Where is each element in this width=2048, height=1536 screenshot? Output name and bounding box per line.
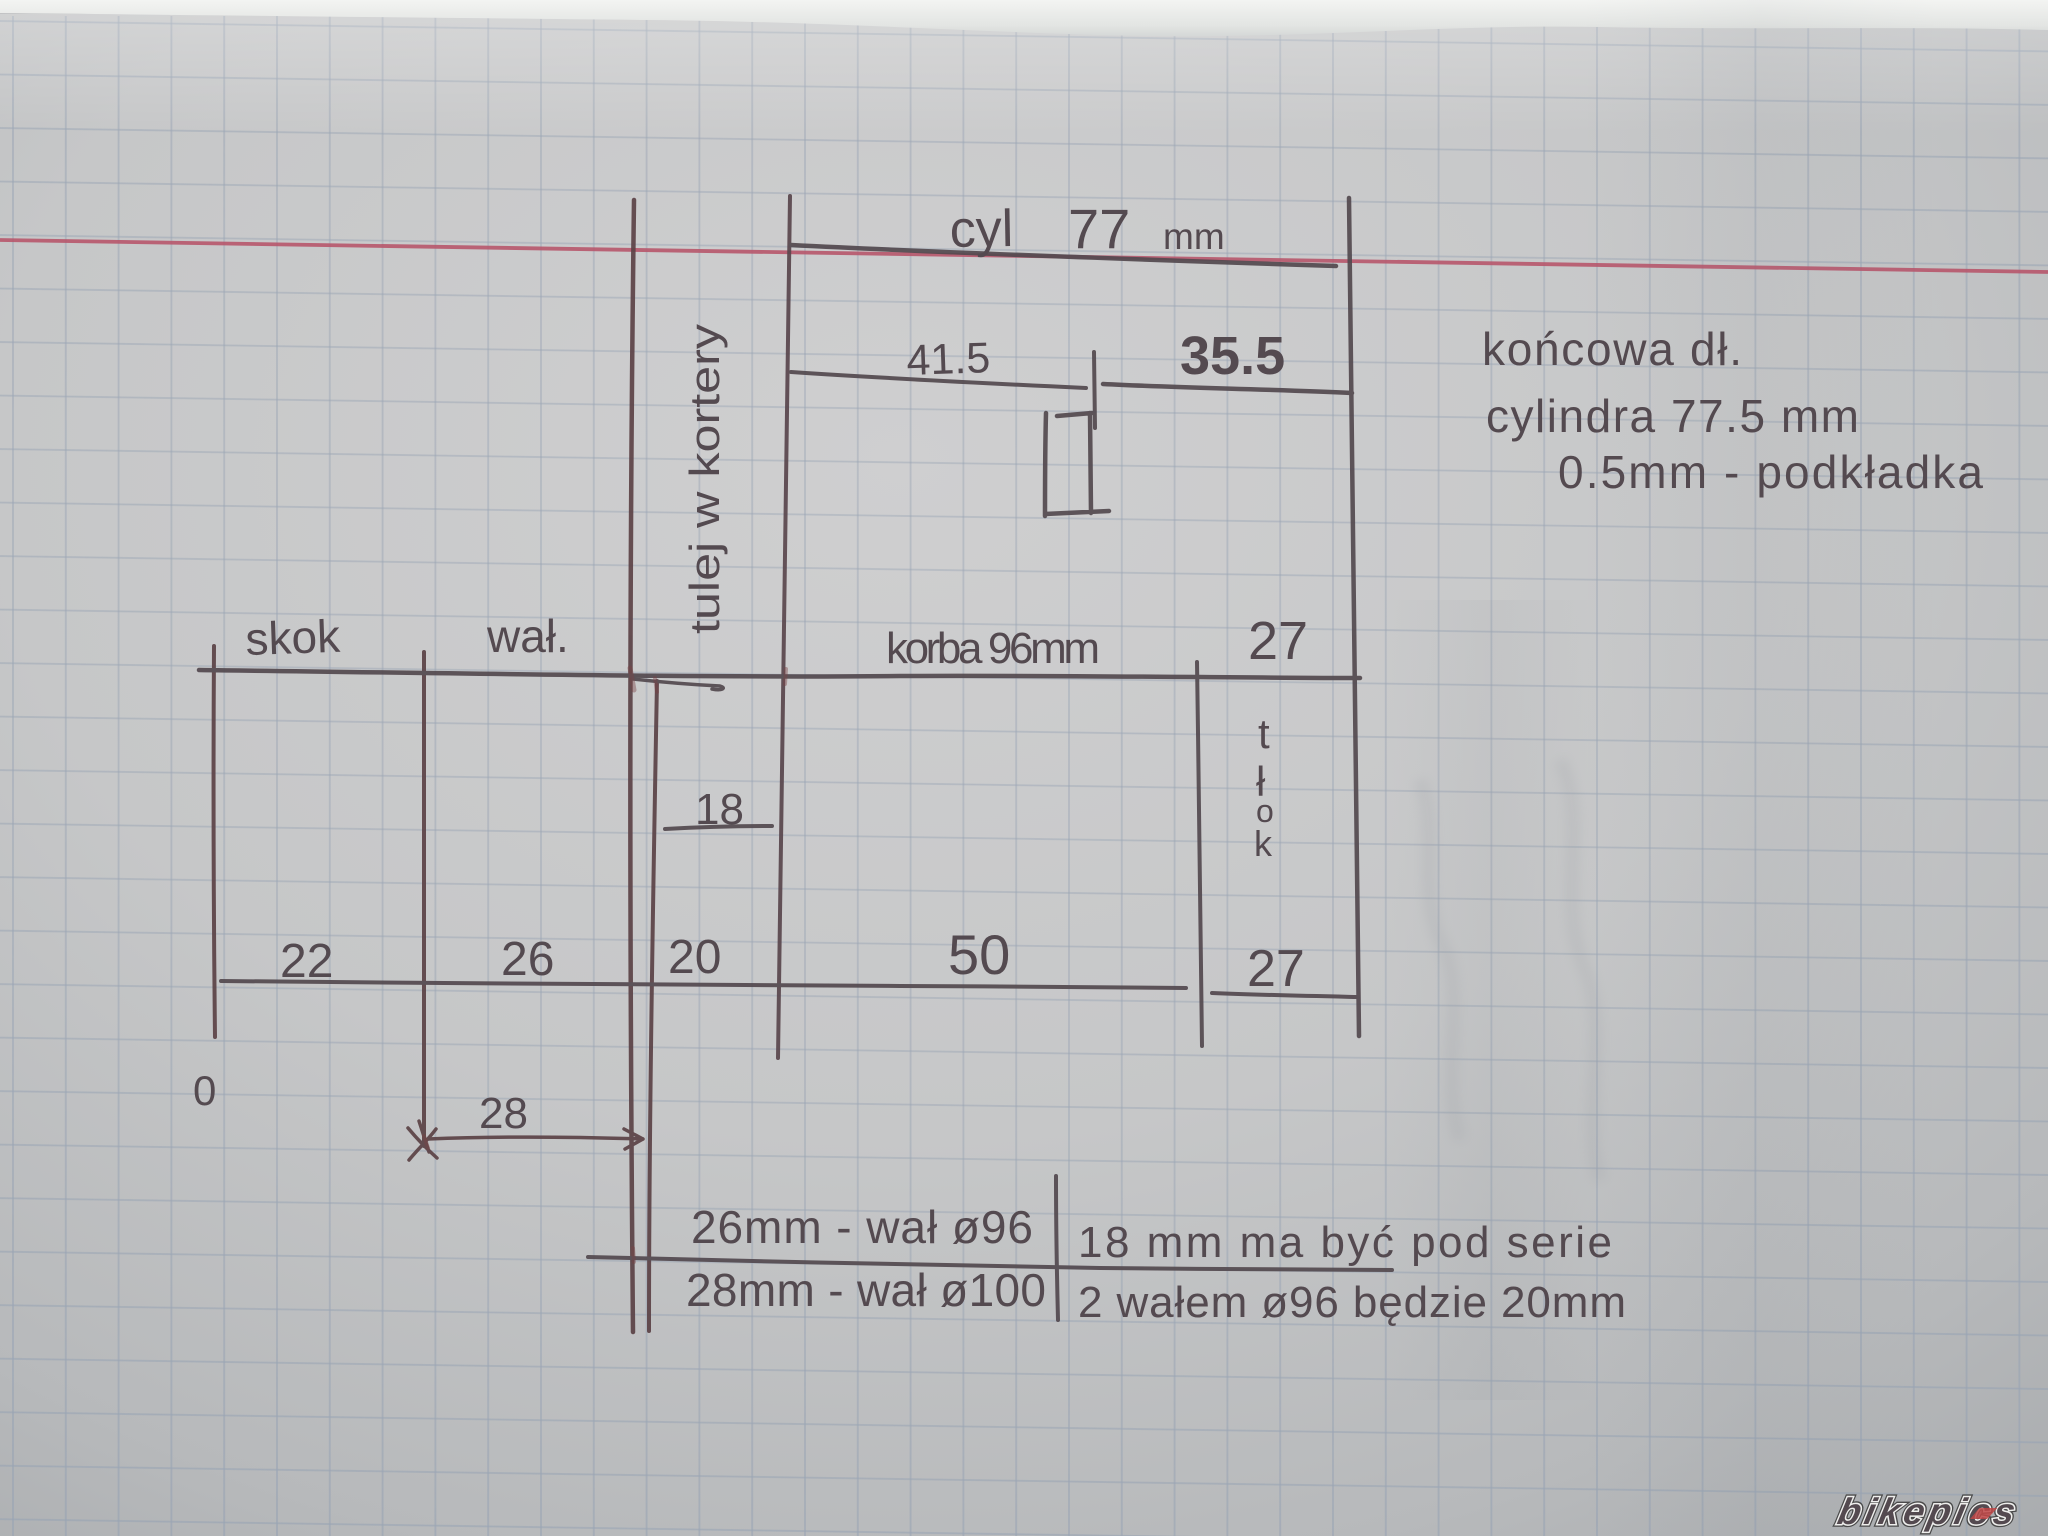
svg-text:18: 18 — [695, 785, 744, 834]
svg-text:41.5: 41.5 — [906, 334, 991, 385]
svg-text:27: 27 — [1248, 611, 1308, 671]
svg-text:26: 26 — [501, 933, 554, 986]
svg-text:22: 22 — [280, 935, 333, 988]
svg-text:k: k — [1254, 823, 1273, 864]
svg-text:0.5mm - podkładka: 0.5mm - podkładka — [1558, 446, 1983, 498]
svg-text:cyl: cyl — [949, 200, 1014, 259]
svg-text:cylindra 77.5 mm: cylindra 77.5 mm — [1486, 390, 1859, 442]
svg-text:28mm - wał ø100: 28mm - wał ø100 — [686, 1264, 1046, 1316]
svg-text:bikepics: bikepics — [1834, 1490, 2023, 1532]
svg-text:77: 77 — [1068, 197, 1130, 260]
svg-text:mm: mm — [1163, 216, 1225, 257]
svg-text:wał.: wał. — [486, 610, 569, 662]
svg-text:35.5: 35.5 — [1180, 326, 1285, 386]
svg-text:0: 0 — [193, 1067, 216, 1114]
svg-text:50: 50 — [948, 923, 1010, 986]
svg-text:28: 28 — [479, 1089, 528, 1138]
svg-text:20: 20 — [668, 931, 721, 984]
svg-text:2 wałem ø96 będzie 20mm: 2 wałem ø96 będzie 20mm — [1078, 1278, 1626, 1327]
svg-text:korba 96mm: korba 96mm — [886, 624, 1100, 673]
svg-text:tulej w kortery: tulej w kortery — [681, 324, 728, 634]
svg-text:27: 27 — [1247, 940, 1305, 998]
svg-text:t: t — [1258, 710, 1270, 757]
svg-text:26mm - wał ø96: 26mm - wał ø96 — [691, 1201, 1033, 1253]
svg-text:skok: skok — [245, 610, 342, 665]
